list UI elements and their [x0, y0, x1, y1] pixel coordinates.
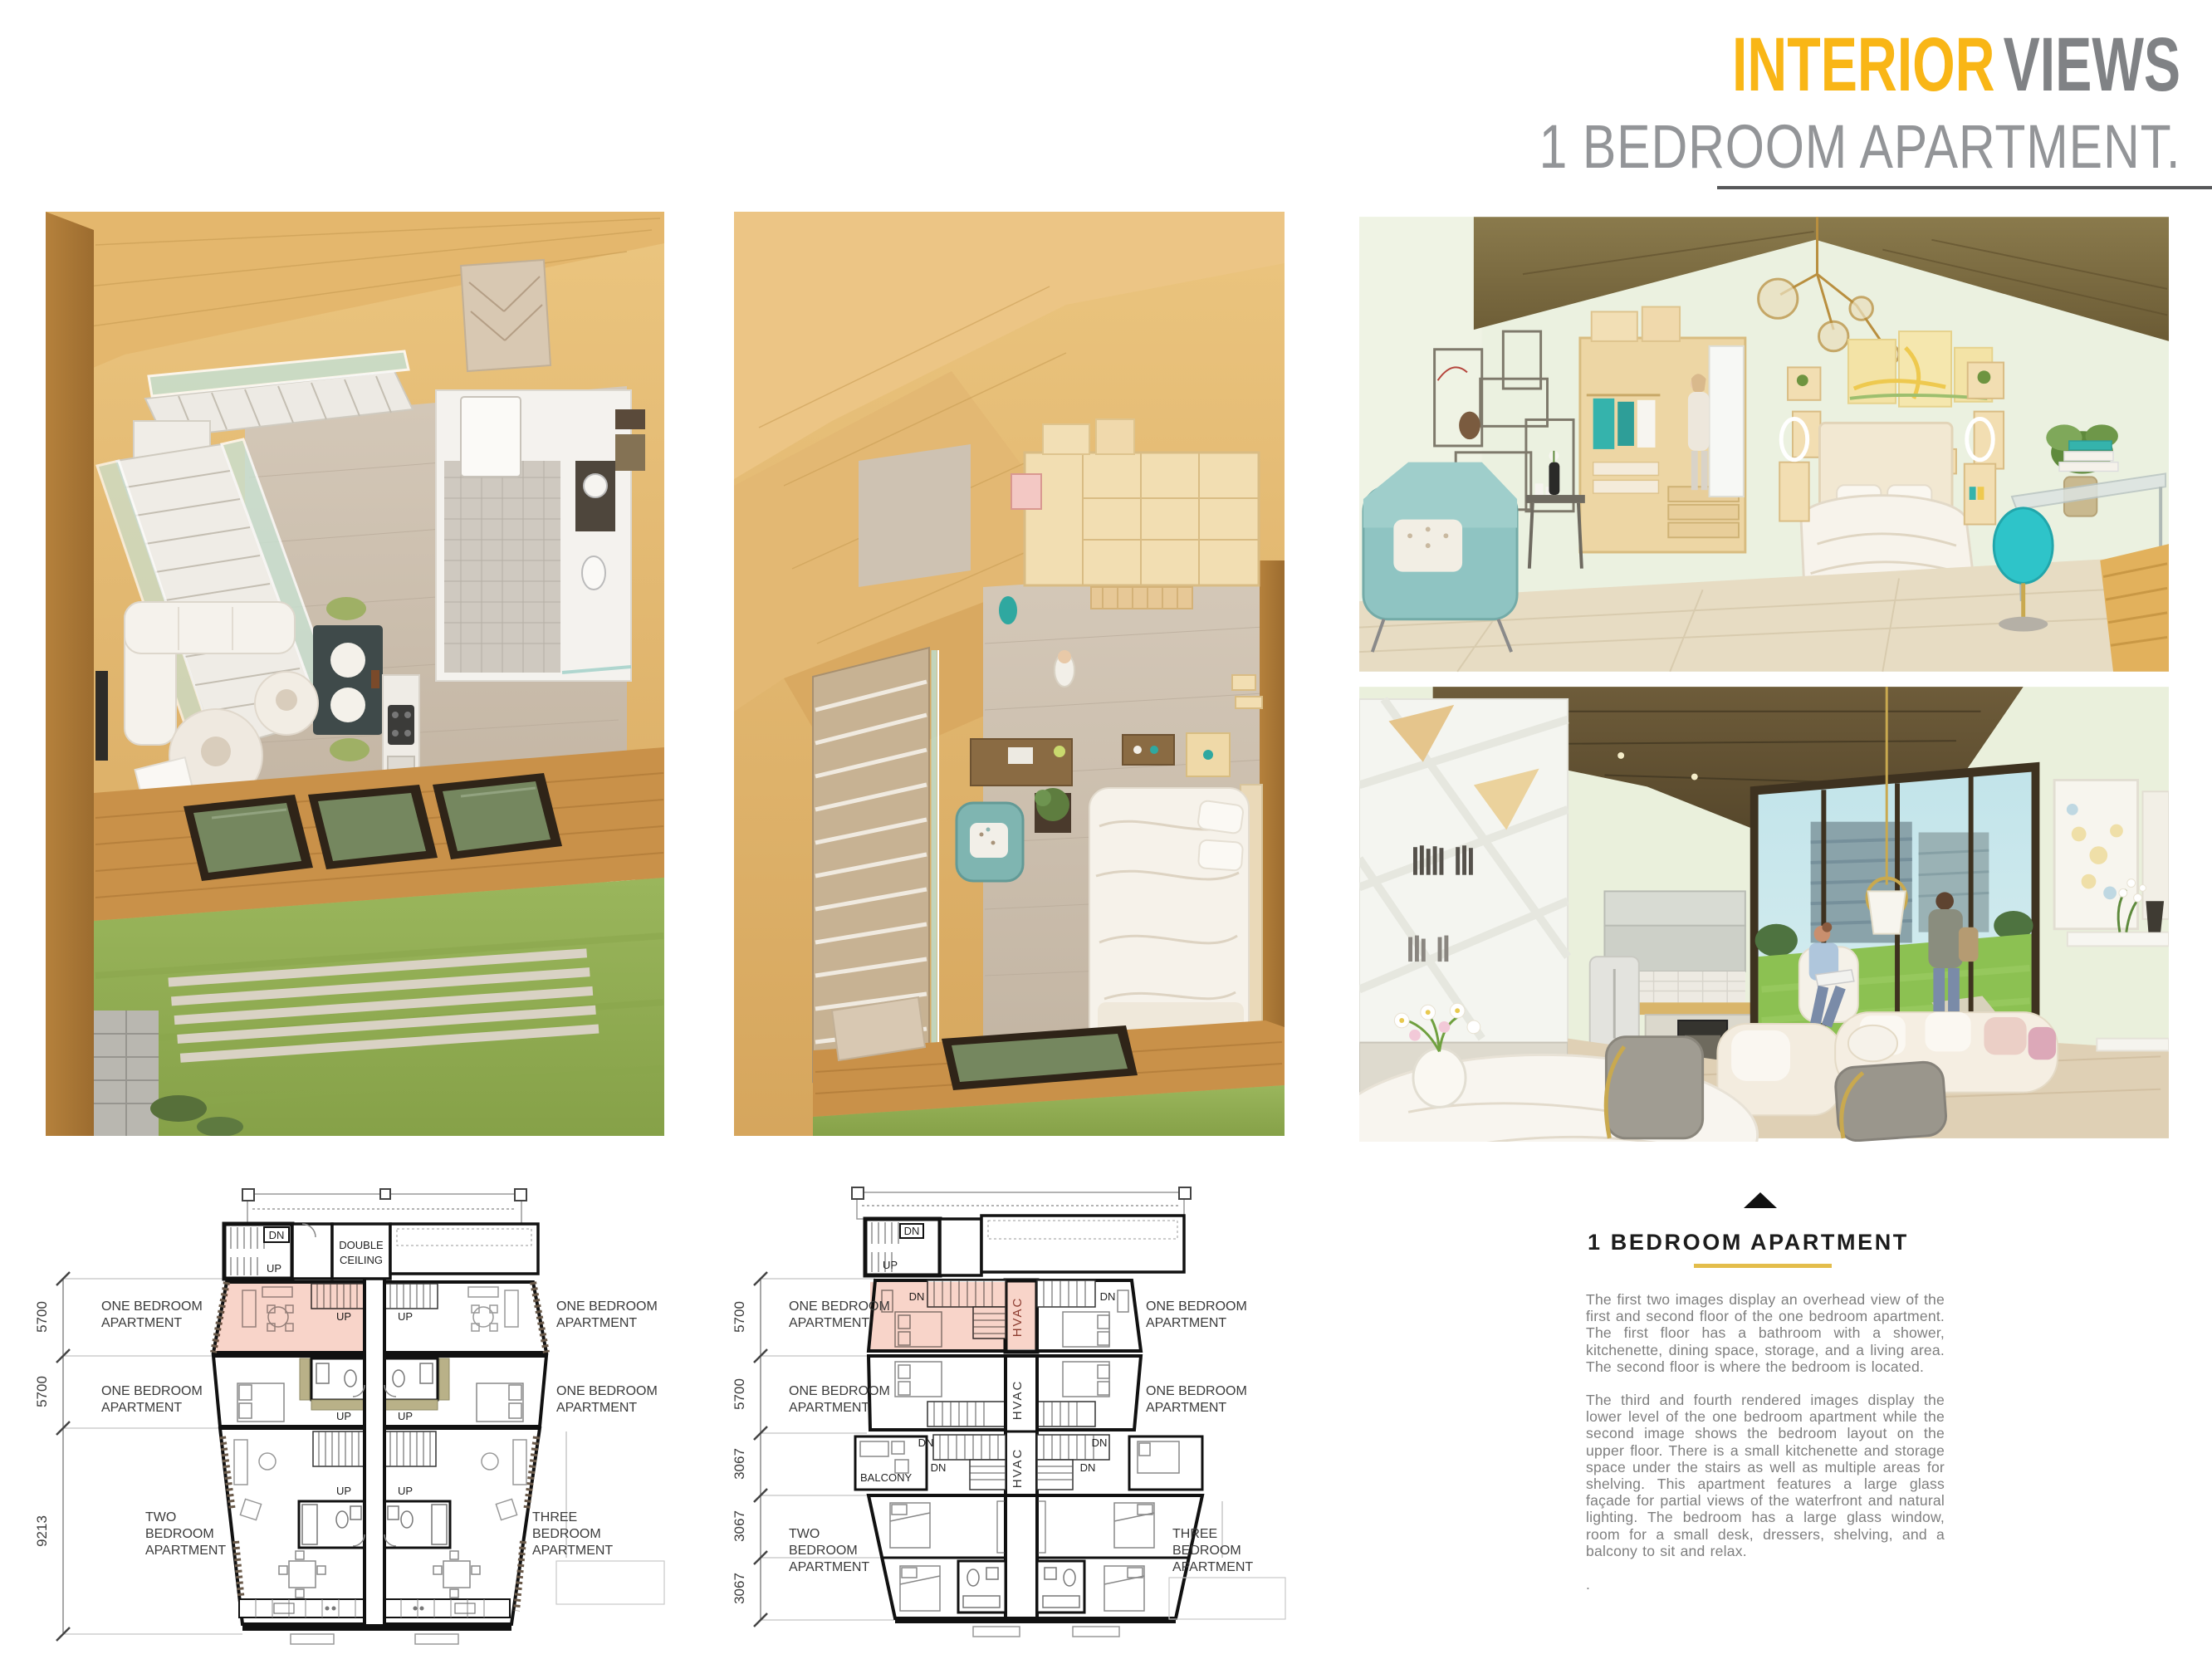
- kitchen-counters: [239, 1599, 510, 1617]
- dim-5700-1: 5700: [34, 1301, 50, 1333]
- presentation-board: INTERIORVIEWS 1 BEDROOM APARTMENT.: [0, 0, 2212, 1659]
- page-subtitle: 1 BEDROOM APARTMENT.: [1539, 111, 2180, 182]
- unit-label: APARTMENT: [101, 1401, 182, 1415]
- stair-core: DN UP DOUBLE CEILING: [224, 1224, 538, 1279]
- first-floor-overhead-render: [46, 212, 664, 1136]
- hvac-label-2: HVAC: [1011, 1380, 1025, 1421]
- up-label: UP: [398, 1410, 413, 1422]
- unit-label: THREE: [1172, 1527, 1217, 1541]
- living-kitchen-render: [1359, 683, 2169, 1142]
- unit-label: ONE BEDROOM: [101, 1384, 203, 1398]
- lawn: [94, 878, 664, 1136]
- balcony-label: BALCONY: [860, 1471, 912, 1484]
- unit-label: ONE BEDROOM: [789, 1384, 890, 1398]
- double-ceiling-label-2: CEILING: [340, 1254, 383, 1266]
- description-panel: 1 BEDROOM APARTMENT The first two images…: [1578, 1187, 1997, 1593]
- page-title-accent: INTERIOR: [1732, 22, 1994, 107]
- up-label: UP: [336, 1410, 351, 1422]
- header-rule: [1717, 186, 2212, 189]
- dim-9213: 9213: [34, 1515, 50, 1547]
- upper-hall-floor: [859, 444, 971, 587]
- up-label: UP: [398, 1485, 413, 1497]
- central-corridor: [365, 1279, 384, 1624]
- stair-dn-label: DN: [904, 1225, 920, 1237]
- dn-label: DN: [918, 1436, 934, 1449]
- plant: [1035, 788, 1071, 833]
- triangle-up-icon: [1744, 1192, 1777, 1208]
- description-paragraph-1: The first two images display an overhead…: [1586, 1291, 1945, 1375]
- bathroom-door: [461, 397, 521, 477]
- shoe-rack: [615, 409, 645, 471]
- mirror: [1710, 346, 1744, 497]
- page-title: INTERIORVIEWS: [1732, 22, 2180, 109]
- dim-5700-2: 5700: [34, 1376, 50, 1407]
- teal-garment: [999, 596, 1017, 624]
- bathroom: [436, 390, 631, 681]
- dim-3067-2: 3067: [732, 1510, 747, 1542]
- unit-label: APARTMENT: [1172, 1560, 1253, 1574]
- stair-up-label: UP: [883, 1259, 898, 1271]
- unit-label: APARTMENT: [789, 1560, 869, 1574]
- unit-label: ONE BEDROOM: [1146, 1384, 1247, 1398]
- unit-label: ONE BEDROOM: [556, 1384, 658, 1398]
- right-wall: [1260, 560, 1285, 1059]
- sink: [1011, 474, 1041, 509]
- dim-5700-2: 5700: [732, 1378, 747, 1410]
- row2-units: UP UP: [213, 1356, 546, 1427]
- stair-up-label: UP: [267, 1262, 281, 1275]
- desk: [971, 739, 1072, 785]
- unit-label: APARTMENT: [1146, 1401, 1226, 1415]
- unit-label: BEDROOM: [1172, 1544, 1241, 1558]
- row3-units: UP UP: [220, 1428, 540, 1644]
- dn-label: DN: [1100, 1290, 1116, 1303]
- tv: [95, 671, 108, 761]
- row1-units: UP UP: [213, 1282, 546, 1353]
- dim-3067-3: 3067: [732, 1573, 747, 1604]
- section-heading: 1 BEDROOM APARTMENT: [1588, 1230, 1997, 1255]
- bedroom-grid: [869, 1495, 1202, 1637]
- unit-label: ONE BEDROOM: [101, 1299, 203, 1314]
- hvac-chase: HVAC HVAC: [1006, 1356, 1037, 1495]
- bed: [1089, 785, 1262, 1052]
- dim-5700-1: 5700: [732, 1301, 747, 1333]
- teal-armchair: [957, 803, 1023, 881]
- entry-rug: [461, 260, 551, 371]
- toilet: [582, 556, 605, 590]
- hvac-label-3: HVAC: [1011, 1448, 1025, 1489]
- unit-label: BEDROOM: [532, 1527, 601, 1541]
- dn-label: DN: [931, 1461, 947, 1474]
- second-floor-overhead-render: [734, 212, 1285, 1136]
- heading-underline: [1694, 1264, 1832, 1268]
- unit-label: ONE BEDROOM: [556, 1299, 658, 1314]
- unit-label: APARTMENT: [556, 1316, 637, 1330]
- row1-units: DN DN HVAC: [869, 1280, 1141, 1352]
- bedroom-interior-render: [1359, 214, 2169, 674]
- left-wall: [46, 212, 94, 1136]
- dn-label: DN: [1092, 1436, 1108, 1449]
- dim-3067-1: 3067: [732, 1448, 747, 1480]
- unit-label: APARTMENT: [556, 1401, 637, 1415]
- roof-band: [242, 1189, 526, 1224]
- first-floor-plan: 5700 5700 9213 DN UP DOUBLE CEILING: [25, 1186, 689, 1659]
- description-paragraph-3: .: [1586, 1576, 1945, 1593]
- up-label: UP: [336, 1485, 351, 1497]
- closet: [1580, 307, 1745, 552]
- unit-label: THREE: [532, 1510, 577, 1524]
- dn-label: DN: [1080, 1461, 1096, 1474]
- highlighted-unit: [215, 1284, 363, 1351]
- unit-label: APARTMENT: [532, 1544, 613, 1558]
- hvac-label-1: HVAC: [1011, 1297, 1025, 1338]
- second-floor-plan: 5700 5700 3067 3067 3067 DN UP: [724, 1186, 1305, 1659]
- stair-dn-label: DN: [269, 1229, 285, 1241]
- unit-label: APARTMENT: [145, 1544, 226, 1558]
- page-title-rest: VIEWS: [2004, 22, 2180, 107]
- up-label: UP: [398, 1310, 413, 1323]
- shelving-unit: [1359, 699, 1568, 1112]
- double-ceiling-label-1: DOUBLE: [339, 1239, 384, 1251]
- unit-label: ONE BEDROOM: [1146, 1299, 1247, 1314]
- unit-label: APARTMENT: [789, 1316, 869, 1330]
- unit-label: APARTMENT: [1146, 1316, 1226, 1330]
- unit-label: TWO: [789, 1527, 820, 1541]
- unit-label: BEDROOM: [789, 1544, 858, 1558]
- stair-core: DN UP: [865, 1216, 1184, 1275]
- unit-label: APARTMENT: [789, 1401, 869, 1415]
- unit-label: APARTMENT: [101, 1316, 182, 1330]
- description-paragraph-2: The third and fourth rendered images dis…: [1586, 1392, 1945, 1559]
- unit-label: TWO: [145, 1510, 176, 1524]
- unit-label: ONE BEDROOM: [789, 1299, 890, 1314]
- unit-label: BEDROOM: [145, 1527, 214, 1541]
